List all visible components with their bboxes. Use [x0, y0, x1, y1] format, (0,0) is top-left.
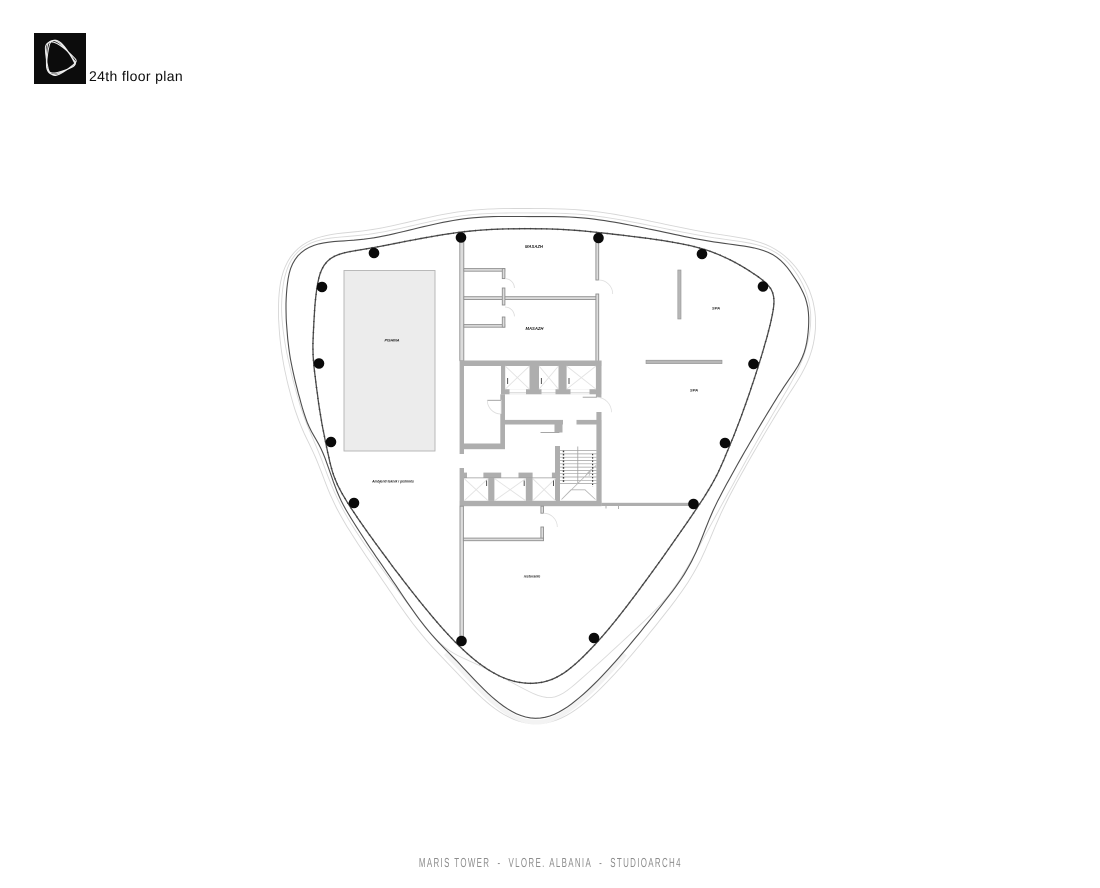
- svg-text:MASAZH: MASAZH: [526, 326, 545, 331]
- svg-text:PISHINA: PISHINA: [385, 339, 400, 343]
- svg-text:SPA: SPA: [690, 388, 698, 393]
- svg-text:restorante: restorante: [524, 575, 541, 579]
- svg-text:SPA: SPA: [712, 306, 720, 311]
- svg-text:MASAZH: MASAZH: [525, 244, 544, 249]
- svg-text:Ambjenti teknik i pishinës: Ambjenti teknik i pishinës: [371, 480, 414, 484]
